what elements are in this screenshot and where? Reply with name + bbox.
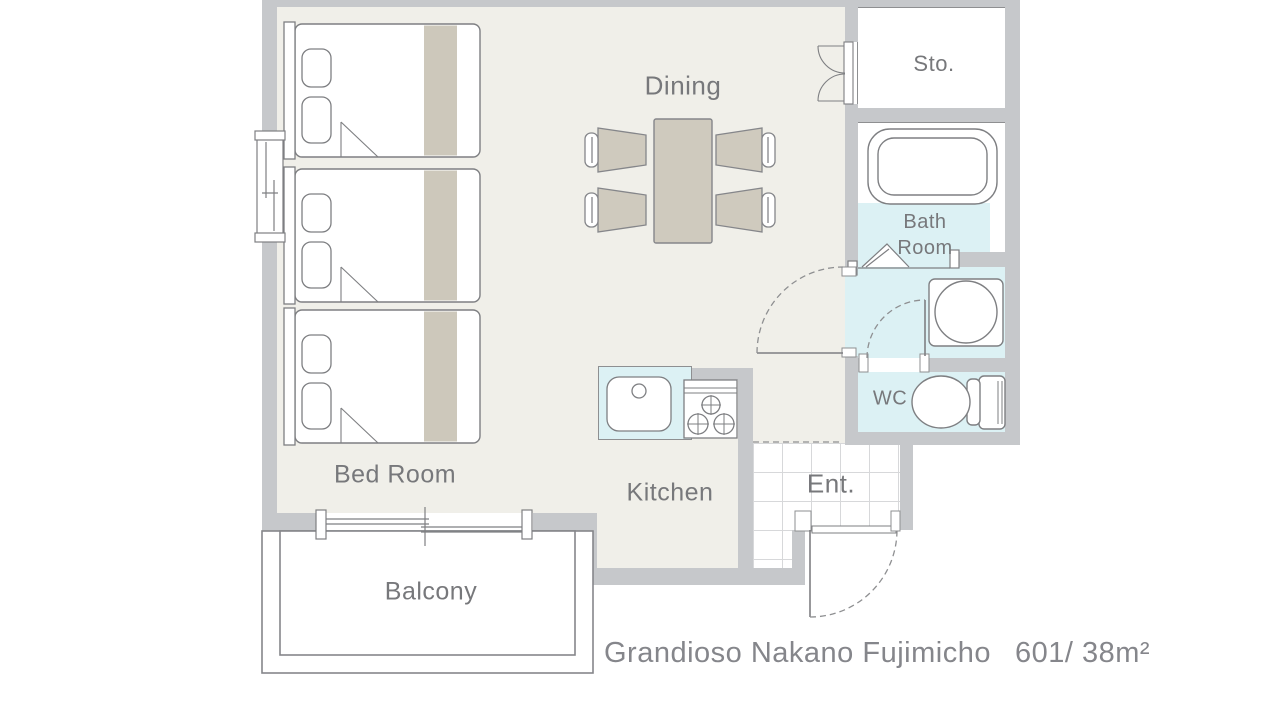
wall-wc-divider-left [845, 358, 861, 372]
plan-title-unit: 601/ 38m² [1015, 637, 1150, 669]
entrance-tile-floor-step [753, 530, 792, 568]
wall-wc-bottom [845, 432, 1020, 445]
wall-entrance-left [792, 530, 805, 569]
wall-bath-partition [958, 252, 1005, 267]
label-bed-room: Bed Room [334, 461, 456, 490]
kitchen-floor-lower [597, 513, 738, 568]
wall-divider-top [845, 7, 858, 42]
label-dining: Dining [645, 71, 722, 102]
wall-left-upper [262, 7, 277, 133]
floorplan-canvas: Dining Bed Room Kitchen Balcony Ent. Sto… [0, 0, 1280, 720]
wall-bedroom-bottom-left [262, 513, 317, 532]
wall-kitchen-right [738, 368, 753, 568]
plan-title: Grandioso Nakano Fujimicho601/ 38m² [604, 637, 1150, 670]
label-kitchen: Kitchen [627, 479, 714, 508]
label-bath-line1: Bath [897, 209, 952, 235]
wall-kitchen-bottom [580, 568, 805, 585]
living-dining-floor [277, 7, 845, 443]
wall-entrance-right [900, 443, 913, 530]
label-bath-line2: Room [897, 235, 952, 261]
wall-below-storage [845, 108, 1020, 122]
label-entrance: Ent. [807, 469, 855, 500]
wall-right-outer [1005, 0, 1020, 445]
wall-above-stove [692, 368, 753, 380]
label-storage: Sto. [913, 51, 954, 77]
wall-left-lower [262, 240, 277, 513]
washroom-floor [845, 267, 1005, 358]
wall-wc-divider-right [929, 358, 1005, 372]
label-wc: WC [873, 388, 907, 411]
kitchen-counter [598, 366, 692, 440]
wall-divider-mid [845, 104, 858, 267]
wall-top [262, 0, 1020, 7]
label-bath-room: Bath Room [897, 209, 952, 261]
plan-title-building: Grandioso Nakano Fujimicho [604, 637, 991, 669]
label-balcony: Balcony [385, 578, 477, 607]
